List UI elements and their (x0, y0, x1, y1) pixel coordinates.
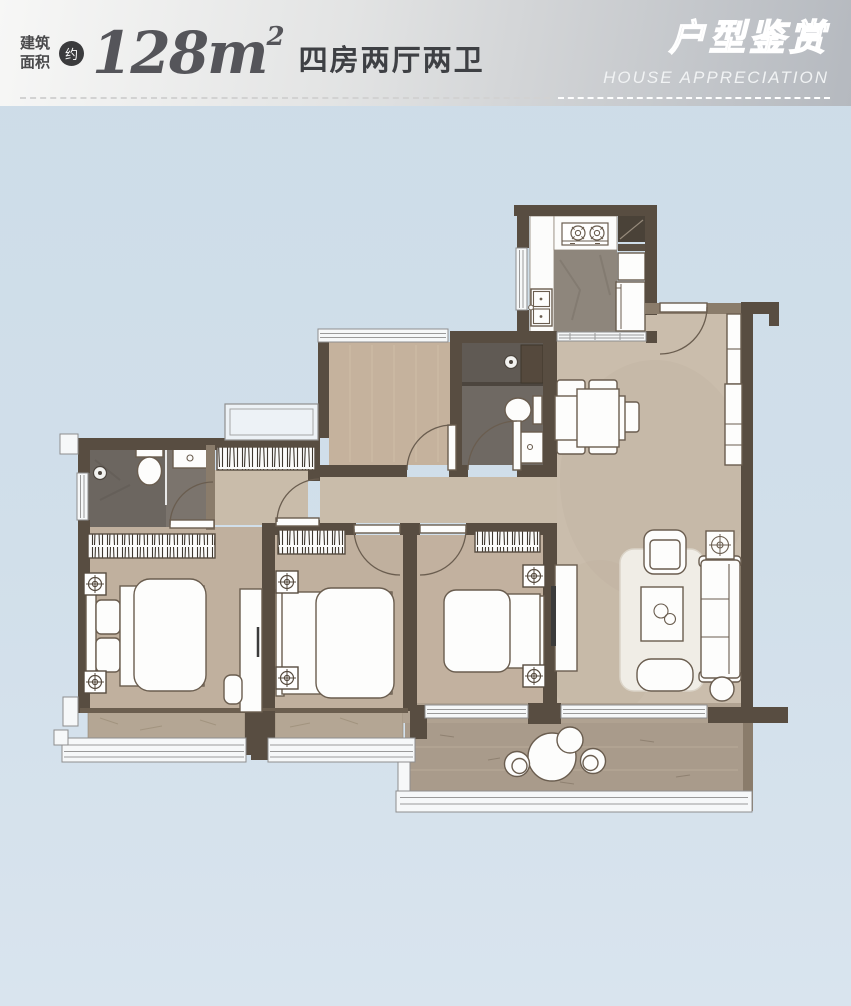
toilet-bowl (505, 398, 531, 422)
hallway-top-wall (320, 465, 407, 477)
burner-icon (590, 226, 604, 240)
approx-badge: 约 (59, 41, 84, 66)
nightstand-lamp-icon (84, 573, 106, 595)
title-english: HOUSE APPRECIATION (603, 68, 829, 88)
bedroom3-balcony-window (425, 705, 528, 718)
kitchen (529, 216, 645, 333)
drain-dot (540, 298, 543, 301)
dining-table-runner (577, 389, 619, 447)
master-bedroom2-wall (262, 535, 275, 711)
master-suite-door-leaf (276, 518, 319, 526)
toilet-bowl (138, 457, 162, 485)
shower-head-dot (509, 360, 513, 364)
bed-blanket (134, 579, 206, 691)
bedroom2-bay-sill (275, 711, 403, 738)
dashed-divider-left (20, 97, 550, 99)
study-window (318, 329, 448, 342)
header-title-block: 户型鉴赏 HOUSE APPRECIATION (603, 16, 829, 88)
nightstand-lamp-icon (523, 565, 545, 587)
title-chinese: 户型鉴赏 (603, 16, 829, 59)
bay-step-box (54, 730, 68, 745)
coffee-table (641, 587, 683, 641)
kitchen-right-wall (645, 205, 657, 315)
bedroom3-door-leaf (420, 525, 466, 533)
ottoman (637, 659, 693, 691)
kitchen-cabinet (618, 253, 645, 280)
shower-head-dot (98, 471, 102, 475)
outer-ac-platform (63, 697, 78, 726)
bath-corridor-wall (206, 445, 215, 530)
kitchen-top-wall (514, 205, 657, 216)
fridge (616, 282, 645, 331)
area-superscript: 2 (266, 22, 284, 52)
kitchen-floor-tile (554, 250, 617, 333)
entry-door-leaf (660, 303, 707, 312)
drain-dot (540, 315, 543, 318)
kitchen-window (516, 248, 527, 310)
master-bathroom (88, 447, 207, 527)
armchair-seat (650, 540, 680, 569)
hallway-floor (320, 477, 557, 523)
desk-stool (224, 675, 242, 704)
bottom-right-wall-tab (708, 707, 788, 723)
bedroom2-furniture (276, 571, 394, 698)
kitchen-sink (531, 289, 552, 326)
bedroom2-wardrobe (278, 530, 345, 554)
kitchen-left-wall (517, 205, 529, 248)
kitchen-bath2-wall (450, 331, 557, 343)
corridor-floor (214, 470, 308, 525)
bedroom2-bay-window-frame (268, 738, 415, 762)
bath2-cabinet (521, 345, 543, 383)
bath-sink (173, 448, 207, 468)
kitchen-dark-band (618, 244, 645, 251)
tv-cabinet (555, 565, 577, 671)
master-bath-window (77, 473, 88, 520)
walkin-wardrobe (217, 447, 315, 470)
area-label: 建筑 面积 (20, 34, 50, 72)
left-outer-wall (78, 438, 90, 473)
nightstand-lamp-icon (523, 665, 545, 687)
pillow (96, 638, 120, 672)
nightstand-lamp-icon (84, 671, 106, 693)
balcony-small-table (557, 727, 583, 753)
balcony-chair-seat (583, 756, 598, 771)
bedroom2-window-wall (262, 708, 408, 713)
nightstand-lamp-icon (276, 571, 298, 593)
bed-blanket (316, 588, 394, 698)
area-value: 128m2 (92, 24, 285, 82)
balcony-left-pillar (410, 705, 427, 739)
wall-stub (646, 331, 657, 343)
header: 建筑 面积 约 128m2 四房两厅两卫 户型鉴赏 HOUSE APPRECIA… (0, 0, 851, 106)
outer-ac-platform (60, 434, 78, 454)
bedroom3-wardrobe (475, 531, 540, 552)
study-door-leaf (448, 425, 456, 470)
header-area-block: 建筑 面积 约 128m2 四房两厅两卫 (20, 24, 485, 82)
floor-plan (0, 106, 851, 1006)
balcony-bottom-window (396, 791, 752, 812)
balcony-mid-pillar (528, 703, 561, 724)
right-outer-wall (741, 314, 753, 707)
bedroom2-bedroom3-wall (403, 535, 417, 711)
bed-headboard (86, 594, 96, 674)
master-bay-sill (88, 711, 245, 738)
dashed-divider-right (558, 97, 830, 99)
layout-text: 四房两厅两卫 (299, 27, 485, 79)
kitchen-left-wall (517, 310, 529, 333)
pillow (96, 600, 120, 634)
tv-screen (551, 586, 556, 646)
bedroom2-door-leaf (354, 525, 400, 533)
bed-blanket (444, 590, 510, 672)
burner-icon (571, 226, 585, 240)
toilet-tank (533, 396, 542, 424)
cabinets (725, 314, 742, 465)
master-window-wall (80, 708, 246, 713)
area-label-line1: 建筑 (20, 34, 50, 53)
poster-page: 建筑 面积 约 128m2 四房两厅两卫 户型鉴赏 HOUSE APPRECIA… (0, 0, 851, 1006)
outer-wall-tab (769, 302, 779, 326)
nightstand-lamp-icon (276, 667, 298, 689)
bath2-door-leaf (513, 421, 521, 470)
faucet-icon (529, 305, 534, 310)
study-left-wall (318, 332, 329, 438)
floor-lamp (710, 677, 734, 701)
bedrooms-top-wall (400, 523, 420, 535)
living-balcony-window (561, 705, 707, 718)
study-floor (329, 342, 450, 465)
master-wardrobe (88, 534, 215, 558)
balcony-chair-seat (512, 759, 527, 774)
sofa (701, 560, 740, 678)
master-bay-window-frame (62, 738, 246, 762)
area-label-line2: 面积 (20, 53, 50, 72)
master-bath-door-leaf (170, 520, 214, 528)
